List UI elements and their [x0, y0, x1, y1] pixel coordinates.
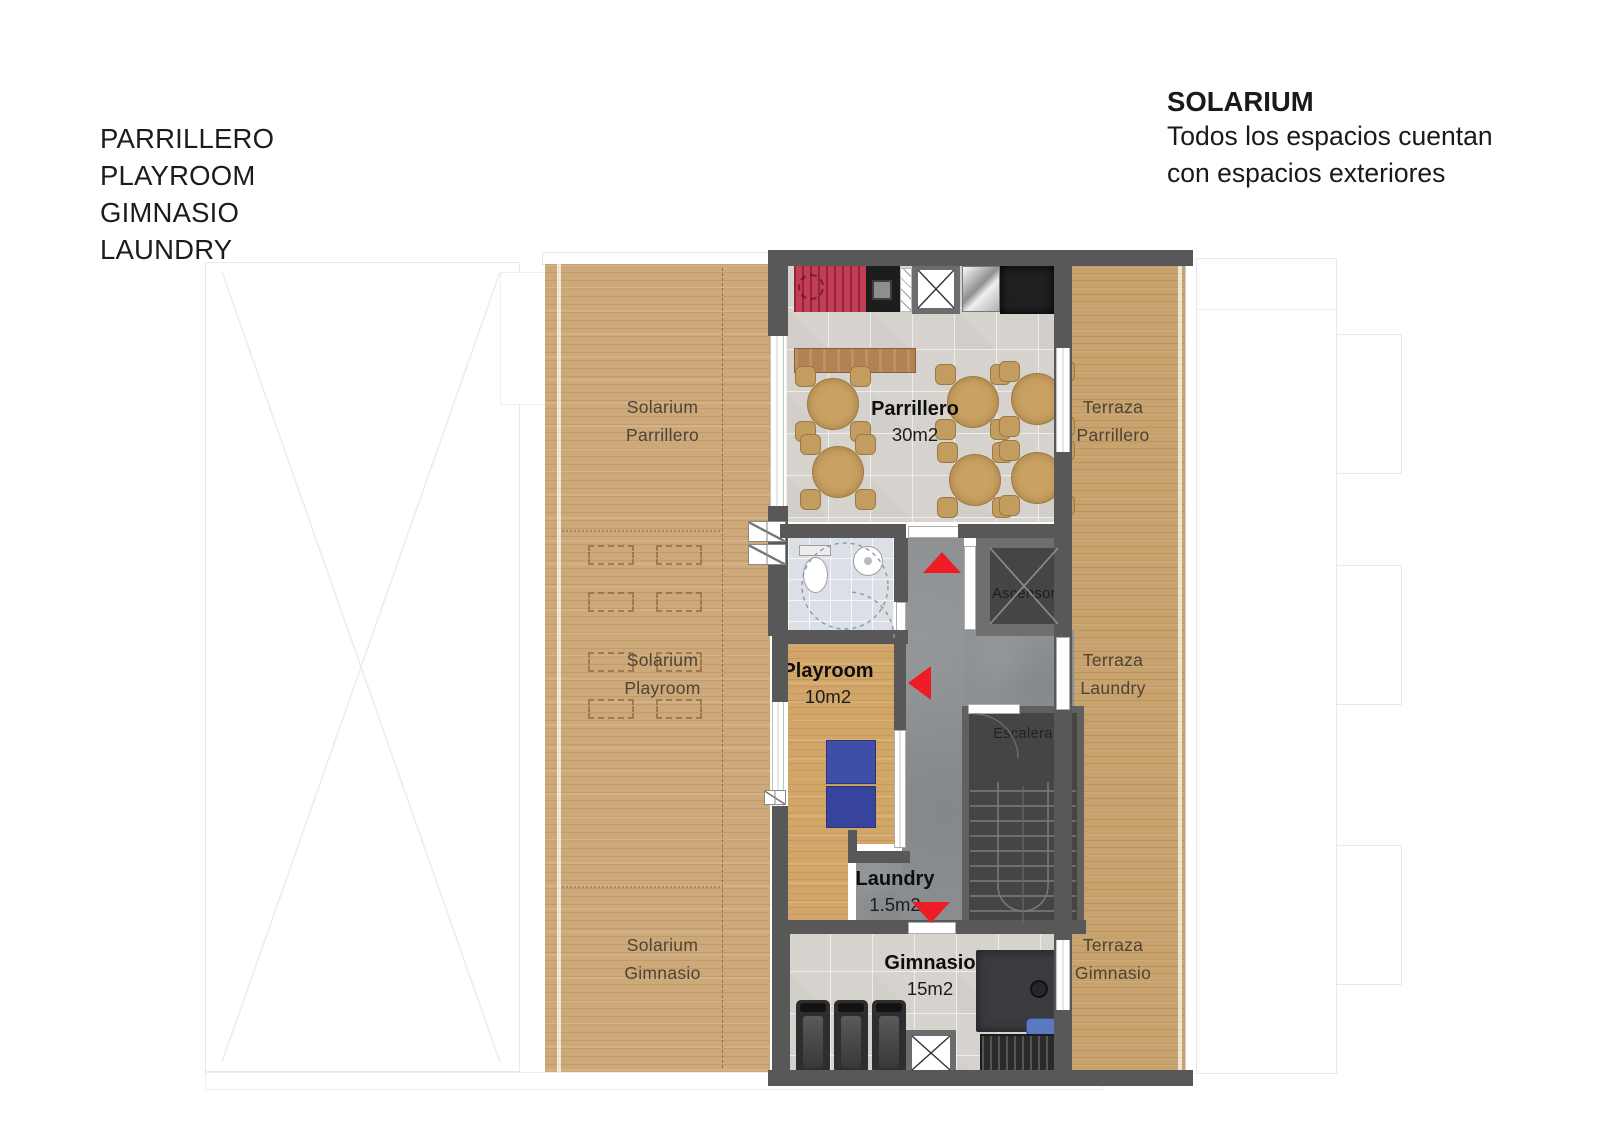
adjacent-roof-box [1336, 334, 1402, 474]
label-gimnasio: Gimnasio 15m2 [855, 950, 1005, 1002]
adjacent-roof-box [1336, 565, 1402, 705]
treadmill [834, 1000, 868, 1074]
sun-lounger-outline [588, 592, 634, 612]
room-area: 15m2 [855, 976, 1005, 1002]
play-mat [826, 740, 876, 784]
treadmill-console [838, 1003, 864, 1012]
treadmill-console [800, 1003, 826, 1012]
elevator-door [964, 546, 976, 630]
wall [780, 524, 906, 538]
gym-door [908, 922, 956, 934]
wall [894, 644, 906, 730]
kettlebell [1030, 980, 1048, 998]
void-area-outline [205, 262, 520, 1072]
label-solarium-playroom: Solarium Playroom [560, 646, 765, 702]
play-mat [826, 786, 876, 828]
washbasin-drain [864, 557, 872, 565]
deck-dotted-joint [562, 886, 720, 888]
wall [768, 1070, 1193, 1086]
sun-lounger-outline [656, 545, 702, 565]
vent-hatch [748, 544, 786, 565]
chair [855, 489, 876, 510]
label-line: Gimnasio [560, 959, 765, 987]
room-name: Laundry [845, 866, 945, 892]
label-line: Solarium [560, 646, 765, 674]
chair [935, 364, 956, 385]
toilet [803, 557, 828, 593]
adjacent-roof-strip [1196, 258, 1337, 1074]
wall [772, 806, 788, 927]
title-block: SOLARIUM Todos los espacios cuentan con … [1167, 86, 1493, 192]
steel-counter [962, 266, 1000, 312]
sliding-door [894, 730, 906, 848]
grill-burner [798, 274, 824, 300]
chair [999, 416, 1020, 437]
playroom-floor [788, 844, 848, 927]
treadmill [872, 1000, 906, 1074]
window [1056, 940, 1070, 1010]
terrace-door [1056, 637, 1070, 710]
floorplan-page: PARRILLERO PLAYROOM GIMNASIO LAUNDRY SOL… [0, 0, 1600, 1135]
label-parrillero: Parrillero 30m2 [840, 396, 990, 448]
chair [937, 497, 958, 518]
label-solarium-parrillero: Solarium Parrillero [560, 393, 765, 449]
wall [768, 250, 1193, 266]
toilet-tank [799, 545, 831, 556]
page-title: SOLARIUM [1167, 86, 1493, 118]
wall [780, 630, 908, 644]
adjacent-roof-box [1336, 845, 1402, 985]
sun-lounger-outline [588, 545, 634, 565]
amenities-legend: PARRILLERO PLAYROOM GIMNASIO LAUNDRY [100, 120, 274, 268]
treadmill-console [876, 1003, 902, 1012]
label-line: Solarium [560, 931, 765, 959]
up-arrow-icon [923, 552, 961, 573]
treadmill-belt [841, 1016, 861, 1068]
chair [800, 489, 821, 510]
dumbwaiter [912, 264, 960, 314]
sun-lounger-outline [656, 699, 702, 719]
vent-hatch [764, 790, 786, 805]
label-line: Solarium [560, 393, 765, 421]
chair [999, 495, 1020, 516]
treadmill-belt [803, 1016, 823, 1068]
sink [872, 280, 892, 300]
chair [850, 366, 871, 387]
table-top [812, 446, 864, 498]
room-name: Parrillero [840, 396, 990, 422]
wall [848, 851, 910, 863]
wall [768, 250, 788, 336]
chair [800, 434, 821, 455]
sun-lounger-outline [588, 699, 634, 719]
treadmill-belt [879, 1016, 899, 1068]
treadmill [796, 1000, 830, 1074]
left-arrow-icon [908, 666, 931, 700]
wall [772, 927, 790, 1072]
legend-line: PLAYROOM [100, 157, 274, 194]
room-area: 30m2 [840, 422, 990, 448]
table-top [949, 454, 1001, 506]
hall-door [908, 526, 960, 538]
legend-line: PARRILLERO [100, 120, 274, 157]
sun-lounger-outline [656, 592, 702, 612]
room-name: Playroom [776, 658, 880, 684]
terrace-edge-line [1178, 266, 1182, 1070]
label-line: Playroom [560, 674, 765, 702]
down-arrow-icon [912, 902, 950, 923]
stairs-door [968, 704, 1020, 714]
glass-wall [770, 336, 784, 506]
hatch-panel [900, 268, 912, 312]
subtitle-line: con espacios exteriores [1167, 155, 1493, 192]
wall [958, 524, 1072, 538]
window [1056, 348, 1070, 452]
label-playroom: Playroom 10m2 [776, 658, 880, 710]
wall [894, 538, 908, 602]
deck-dotted-joint [562, 530, 720, 532]
subtitle-line: Todos los espacios cuentan [1167, 118, 1493, 155]
label-solarium-gimnasio: Solarium Gimnasio [560, 931, 765, 987]
roof-division-line [1197, 309, 1336, 310]
wall [772, 636, 788, 702]
room-area: 10m2 [776, 684, 880, 710]
legend-line: GIMNASIO [100, 194, 274, 231]
chair [795, 366, 816, 387]
chair [999, 361, 1020, 382]
room-name: Gimnasio [855, 950, 1005, 976]
stone-counter [1000, 266, 1054, 314]
label-line: Parrillero [560, 421, 765, 449]
chair [999, 440, 1020, 461]
